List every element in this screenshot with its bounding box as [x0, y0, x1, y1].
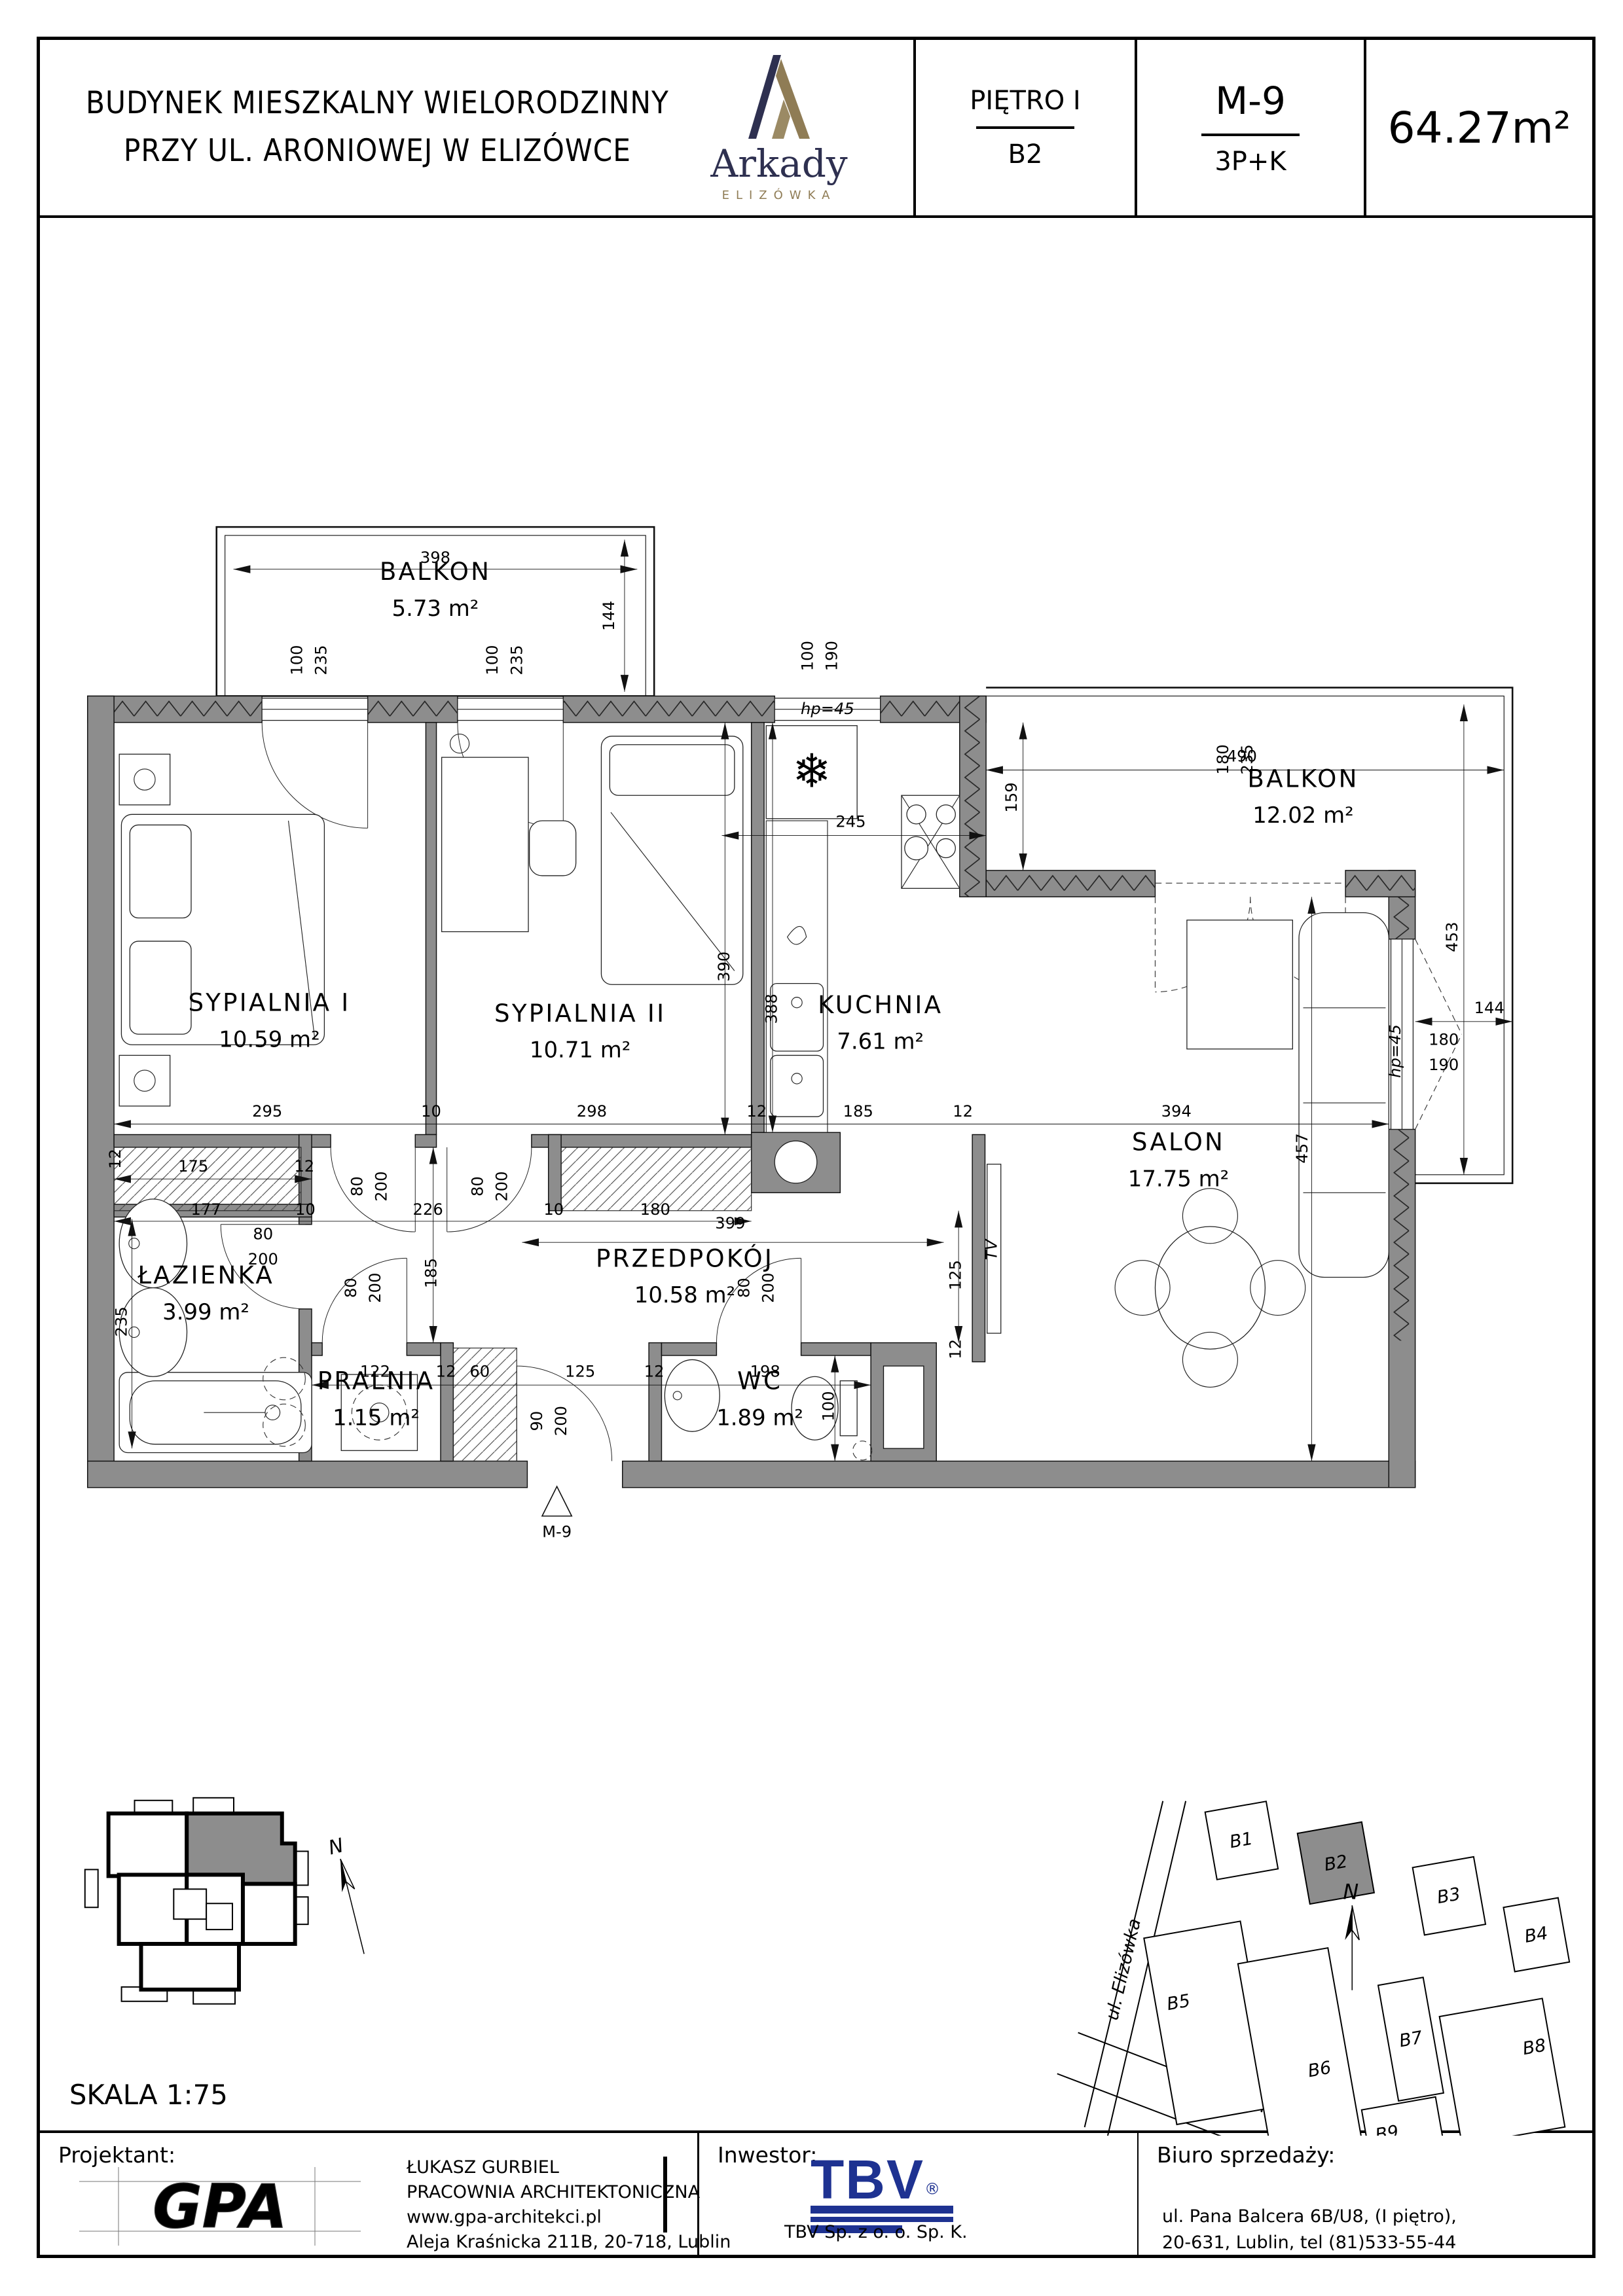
site-building: B3 [1413, 1857, 1486, 1935]
title-line-1: BUDYNEK MIESZKALNY WIELORODZINNY [86, 80, 669, 128]
balcony-door-window-2 [458, 698, 563, 721]
dimension-label: 235 [112, 1306, 130, 1336]
designer-line: www.gpa-architekci.pl [407, 2205, 731, 2230]
kitchen-counter [766, 821, 828, 1132]
entrance-marker: M-9 [542, 1486, 572, 1541]
investor-name: TBV Sp. z o. o. Sp. K. [784, 2222, 968, 2242]
room-area: 17.75 m² [1128, 1166, 1229, 1192]
rooms-code: 3P+K [1214, 147, 1286, 177]
sales-office-section: Biuro sprzedaży: ul. Pana Balcera 6B/U8,… [1139, 2133, 1592, 2255]
dimension-label: 159 [1002, 782, 1021, 812]
dimension-label: 12 [953, 1102, 973, 1121]
room-name: PRZEDPOKÓJ [596, 1244, 774, 1272]
arkady-triangle-icon [743, 54, 815, 140]
svg-text:B5: B5 [1165, 1990, 1192, 2015]
site-north-label: N [1343, 1879, 1359, 1904]
divider [1201, 134, 1300, 136]
sofa [1299, 912, 1389, 1277]
dimension-label: hp=45 [1386, 1024, 1404, 1078]
dimension-label: 144 [1474, 999, 1504, 1017]
salon-table [1187, 920, 1292, 1049]
dimension-label: 394 [1161, 1102, 1192, 1121]
dimension-label: 80 [735, 1278, 753, 1298]
dimension-label: 12 [746, 1102, 767, 1121]
site-north-arrow: N [1343, 1879, 1359, 1990]
keyplan-north-arrow: N [326, 1834, 371, 1956]
dimension-label: 226 [413, 1200, 443, 1219]
room-area: 1.15 m² [333, 1405, 420, 1431]
total-area: 64.27m² [1388, 103, 1571, 153]
sales-office-label: Biuro sprzedaży: [1157, 2142, 1335, 2168]
dining-table [1115, 1189, 1305, 1388]
dimension-label: 100 [288, 645, 306, 675]
dimension-label: 453 [1443, 922, 1461, 952]
dimension-label: 12 [436, 1362, 456, 1380]
office-line: 20-631, Lublin, tel (81)533-55-44 [1162, 2230, 1457, 2256]
title-block: BUDYNEK MIESZKALNY WIELORODZINNY PRZY UL… [40, 40, 1592, 218]
svg-text:B7: B7 [1398, 2028, 1424, 2052]
dimension-label: 200 [759, 1273, 778, 1303]
wc-sink [665, 1359, 720, 1431]
arkady-logo: Arkady ELIZÓWKA [671, 54, 887, 202]
room-name: SYPIALNIA I [188, 989, 350, 1017]
dimension-label: 235 [312, 645, 331, 675]
dimension-label: 80 [253, 1225, 273, 1243]
dimension-label: 245 [835, 813, 866, 831]
dimension-label: 235 [1238, 744, 1256, 774]
dimension-label: 180 [1214, 744, 1232, 774]
svg-text:B1: B1 [1228, 1829, 1254, 1853]
drawing-area: ❄ [40, 218, 1592, 2130]
laundry-door [322, 1258, 407, 1342]
room-name: KUCHNIA [818, 991, 943, 1019]
title-cell: BUDYNEK MIESZKALNY WIELORODZINNY PRZY UL… [40, 40, 916, 215]
unit-number: M-9 [1215, 79, 1286, 123]
designer-section: Projektant: GPA ŁUKASZ GURBIEL PRACOWNIA… [40, 2133, 699, 2255]
plan-sheet: BUDYNEK MIESZKALNY WIELORODZINNY PRZY UL… [0, 0, 1623, 2296]
svg-text:❄: ❄ [792, 744, 831, 798]
scale-label: SKALA 1:75 [69, 2079, 228, 2111]
dimension-label: TV [982, 1238, 1000, 1260]
office-line: ul. Pana Balcera 6B/U8, (I piętro), [1162, 2204, 1457, 2230]
entrance-marker-label: M-9 [542, 1523, 572, 1541]
dimension-label: hp=45 [801, 700, 854, 718]
site-building-highlight: B2 [1298, 1822, 1374, 1904]
dimension-label: 10 [543, 1200, 564, 1219]
dimension-label: 200 [366, 1273, 384, 1303]
designer-lines: ŁUKASZ GURBIEL PRACOWNIA ARCHITEKTONICZN… [407, 2155, 731, 2255]
building-label: B2 [1008, 139, 1043, 170]
dimension-label: 185 [843, 1102, 873, 1121]
svg-text:B8: B8 [1521, 2036, 1547, 2060]
dimension-label: 190 [822, 641, 841, 671]
balcony-door-window-1 [262, 698, 367, 721]
designer-line: Aleja Kraśnicka 211B, 20-718, Lublin [407, 2230, 731, 2255]
dimension-label: 190 [1429, 1056, 1459, 1074]
room-area: 10.58 m² [634, 1282, 735, 1308]
keyplan-north-label: N [326, 1834, 346, 1859]
dimension-label: 398 [420, 548, 450, 567]
dimension-label: 100 [483, 645, 501, 675]
dimension-label: 298 [577, 1102, 607, 1121]
dimension-label: 60 [469, 1362, 490, 1380]
floor-cell: PIĘTRO I B2 [916, 40, 1137, 215]
bedroom2-door [447, 1147, 532, 1232]
dimension-label: 200 [552, 1406, 570, 1436]
nightstand [119, 754, 170, 804]
designer-line: ŁUKASZ GURBIEL [407, 2155, 731, 2180]
svg-text:B2: B2 [1322, 1852, 1349, 1876]
site-building: B1 [1205, 1801, 1278, 1879]
dimension-label: 200 [493, 1172, 511, 1202]
sheet-frame: BUDYNEK MIESZKALNY WIELORODZINNY PRZY UL… [37, 37, 1596, 2258]
dimension-label: 144 [600, 601, 618, 631]
investor-label: Inwestor: [718, 2142, 817, 2168]
room-area: 3.99 m² [162, 1299, 249, 1325]
dimension-label: 399 [715, 1214, 745, 1232]
investor-section: Inwestor: TBV® TBV Sp. z o. o. Sp. K. [699, 2133, 1139, 2255]
svg-text:B6: B6 [1306, 2058, 1332, 2082]
room-name: SYPIALNIA II [494, 999, 666, 1028]
footer-block: Projektant: GPA ŁUKASZ GURBIEL PRACOWNIA… [40, 2130, 1592, 2255]
dimension-label: 198 [750, 1362, 780, 1380]
dimension-label: 12 [106, 1149, 124, 1169]
dimension-label: 10 [295, 1200, 316, 1219]
divider [976, 126, 1074, 129]
dimension-label: 122 [360, 1362, 390, 1380]
dimension-label: 90 [528, 1411, 546, 1431]
room-name: SALON [1132, 1128, 1225, 1157]
logo-name: Arkady [710, 141, 847, 186]
registered-icon: ® [924, 2180, 940, 2198]
fridge: ❄ [766, 726, 857, 819]
unit-cell: M-9 3P+K [1137, 40, 1366, 215]
dimension-label: 100 [820, 1391, 838, 1421]
site-building: B4 [1503, 1898, 1569, 1972]
dimension-label: 180 [640, 1200, 670, 1219]
dimension-label: 10 [421, 1102, 441, 1121]
dimension-label: 457 [1293, 1133, 1311, 1163]
bedroom1-balcony-door [262, 723, 367, 828]
nightstand [119, 1055, 170, 1105]
dimension-label: 80 [469, 1176, 487, 1196]
dimension-label: 235 [507, 645, 526, 675]
room-name: BALKON [1247, 764, 1359, 793]
site-building: B9 [1362, 2097, 1446, 2136]
room-area: 5.73 m² [392, 596, 479, 621]
dimension-label: 185 [422, 1258, 441, 1288]
desk-and-chair [442, 734, 576, 932]
dimension-label: 295 [252, 1102, 282, 1121]
dimension-label: 390 [715, 952, 733, 982]
dimension-label: 100 [798, 641, 816, 671]
room-area: 12.02 m² [1252, 802, 1353, 828]
key-plan: N [85, 1798, 371, 2004]
room-area: 1.89 m² [716, 1405, 803, 1431]
floor-label: PIĘTRO I [970, 86, 1080, 116]
dimension-label: 80 [348, 1176, 367, 1196]
designer-line: PRACOWNIA ARCHITEKTONICZNA [407, 2180, 731, 2205]
area-cell: 64.27m² [1366, 40, 1592, 215]
sheet-title: BUDYNEK MIESZKALNY WIELORODZINNY PRZY UL… [86, 80, 669, 175]
dimension-label: 12 [294, 1157, 314, 1175]
dimension-label: 180 [1429, 1030, 1459, 1049]
site-plan: ul. Elizówka ul.Aroniowa B1 B2 B3 B4 B5 … [1057, 1801, 1594, 2136]
dimension-label: 388 [762, 994, 780, 1024]
stove [902, 795, 960, 888]
sales-office-address: ul. Pana Balcera 6B/U8, (I piętro), 20-6… [1162, 2204, 1457, 2256]
divider [663, 2157, 667, 2233]
dimension-label: 175 [178, 1157, 208, 1175]
bed-single [601, 736, 742, 984]
svg-text:B3: B3 [1436, 1884, 1462, 1908]
bathtub [119, 1372, 312, 1453]
svg-text:B4: B4 [1523, 1923, 1549, 1947]
street-label-elizowka: ul. Elizówka [1102, 1916, 1145, 2022]
floor-plan-svg: ❄ [40, 218, 1594, 2136]
dimension-label: 125 [565, 1362, 595, 1380]
logo-subtitle: ELIZÓWKA [722, 188, 837, 202]
dimension-label: 12 [644, 1362, 665, 1380]
apartment-plan: ❄ [88, 527, 1512, 1541]
gpa-logo: GPA [79, 2167, 361, 2248]
gpa-logo-text: GPA [153, 2172, 287, 2242]
dimension-label: 177 [191, 1200, 221, 1219]
site-building: B8 [1440, 1998, 1565, 2136]
dimension-label: 200 [248, 1250, 278, 1268]
site-building: B7 [1378, 1977, 1444, 2101]
dimension-label: 80 [342, 1278, 360, 1298]
room-area: 7.61 m² [837, 1029, 924, 1054]
designer-label: Projektant: [58, 2142, 175, 2168]
title-line-2: PRZY UL. ARONIOWEJ W ELIZÓWCE [86, 128, 669, 175]
dimension-label: 125 [946, 1260, 964, 1290]
tbv-logo-text: TBV [811, 2149, 924, 2210]
room-area: 10.59 m² [219, 1027, 319, 1052]
dimension-label: 12 [946, 1339, 964, 1359]
room-area: 10.71 m² [530, 1037, 630, 1063]
dimension-label: 200 [373, 1172, 391, 1202]
